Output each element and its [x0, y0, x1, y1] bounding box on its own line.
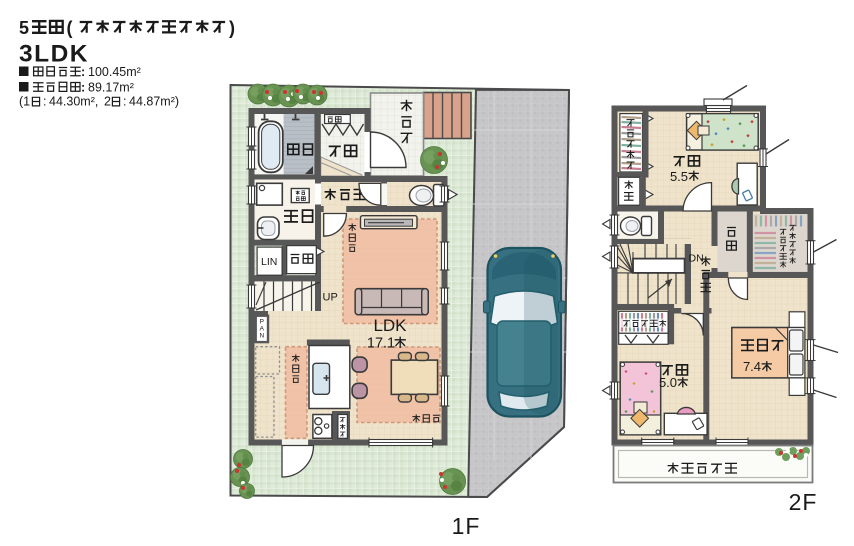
svg-text:LDK: LDK [373, 316, 407, 335]
svg-text:89.17m²: 89.17m² [88, 80, 134, 94]
svg-text:5: 5 [19, 18, 29, 38]
svg-text:(: ( [67, 18, 73, 38]
svg-text:100.45m²: 100.45m² [88, 65, 141, 79]
svg-text:2F: 2F [789, 489, 818, 515]
svg-text:5.5: 5.5 [670, 169, 688, 184]
svg-text::: : [81, 80, 85, 94]
svg-text:17.1: 17.1 [367, 336, 395, 352]
svg-text:A: A [260, 326, 265, 333]
svg-text:44.87m²): 44.87m²) [129, 95, 179, 109]
svg-text::: : [123, 95, 126, 109]
svg-text::: : [81, 65, 85, 79]
svg-text:(1: (1 [19, 95, 30, 109]
svg-text:3LDK: 3LDK [19, 41, 89, 68]
svg-text:2: 2 [104, 95, 111, 109]
svg-text:1F: 1F [452, 513, 481, 539]
svg-text:7.4: 7.4 [743, 359, 761, 374]
svg-text:5.0: 5.0 [659, 375, 677, 390]
svg-text:UP: UP [323, 292, 338, 304]
svg-text:44.30m²,: 44.30m², [49, 95, 98, 109]
svg-text:N: N [259, 333, 264, 340]
svg-text:P: P [260, 319, 264, 326]
svg-text:): ) [229, 18, 235, 38]
svg-text:LIN: LIN [261, 256, 277, 268]
svg-text::: : [43, 95, 46, 109]
